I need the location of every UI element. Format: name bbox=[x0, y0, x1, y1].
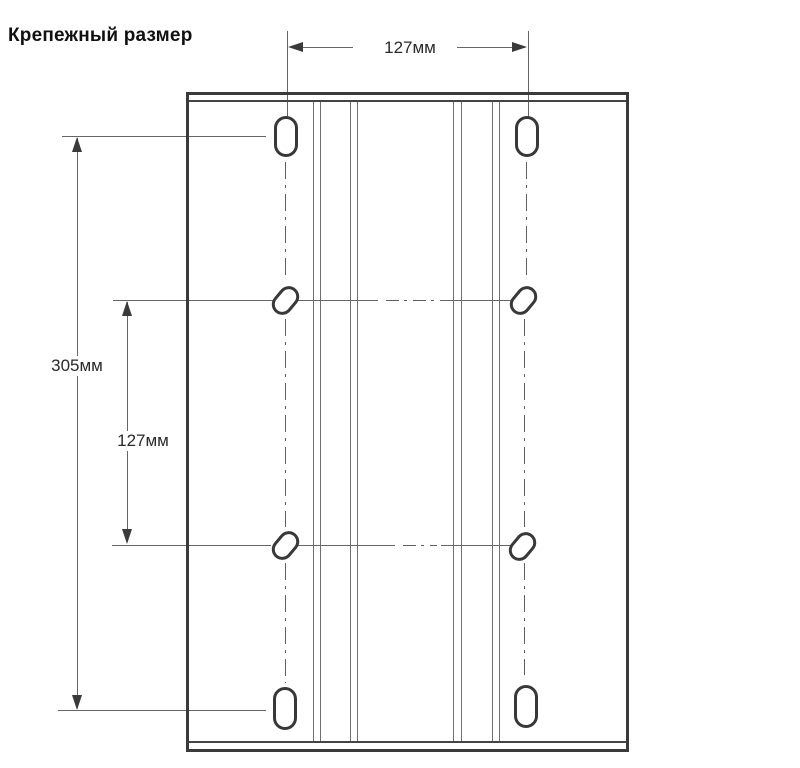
center-line-vertical bbox=[524, 563, 525, 675]
center-line-vertical bbox=[285, 319, 286, 527]
center-line-vertical bbox=[524, 319, 525, 527]
center-line-vertical bbox=[526, 162, 527, 278]
center-line-vertical bbox=[285, 563, 286, 683]
arrowhead bbox=[122, 301, 132, 316]
groove-line bbox=[320, 102, 321, 741]
center-line-horizontal bbox=[441, 545, 511, 546]
arrowhead bbox=[122, 529, 132, 544]
arrowhead bbox=[72, 695, 82, 710]
center-line-horizontal bbox=[440, 300, 512, 301]
center-line-horizontal bbox=[297, 300, 378, 301]
center-line-vertical bbox=[285, 162, 286, 278]
groove-line bbox=[350, 102, 351, 741]
groove-line bbox=[357, 102, 358, 741]
arrowhead bbox=[512, 42, 527, 52]
mounting-slot-bottom-left bbox=[273, 687, 297, 730]
arrowhead bbox=[72, 137, 82, 152]
dimension-label-hole-spacing: 127мм bbox=[111, 431, 175, 451]
center-line-horizontal bbox=[297, 545, 395, 546]
center-line-horizontal bbox=[403, 545, 437, 546]
plate-bottom-flange-line bbox=[189, 741, 626, 743]
technical-drawing-canvas: Крепежный размер bbox=[0, 0, 800, 768]
mounting-slot-top-left bbox=[274, 116, 298, 157]
groove-line bbox=[499, 102, 500, 741]
plate-outline bbox=[186, 92, 629, 752]
mounting-slot-top-right bbox=[515, 116, 539, 157]
dimension-line bbox=[77, 138, 78, 708]
dimension-label-total-height: 305мм bbox=[46, 356, 108, 376]
groove-line bbox=[313, 102, 314, 741]
dimension-label-top-width: 127мм bbox=[372, 38, 448, 58]
groove-line bbox=[492, 102, 493, 741]
plate-top-flange-line bbox=[189, 100, 626, 102]
drawing-title: Крепежный размер bbox=[8, 25, 193, 47]
groove-line bbox=[461, 102, 462, 741]
dimension-line bbox=[127, 302, 128, 542]
center-line-horizontal bbox=[386, 300, 438, 301]
mounting-slot-bottom-right bbox=[514, 685, 538, 728]
arrowhead bbox=[288, 42, 303, 52]
groove-line bbox=[453, 102, 454, 741]
